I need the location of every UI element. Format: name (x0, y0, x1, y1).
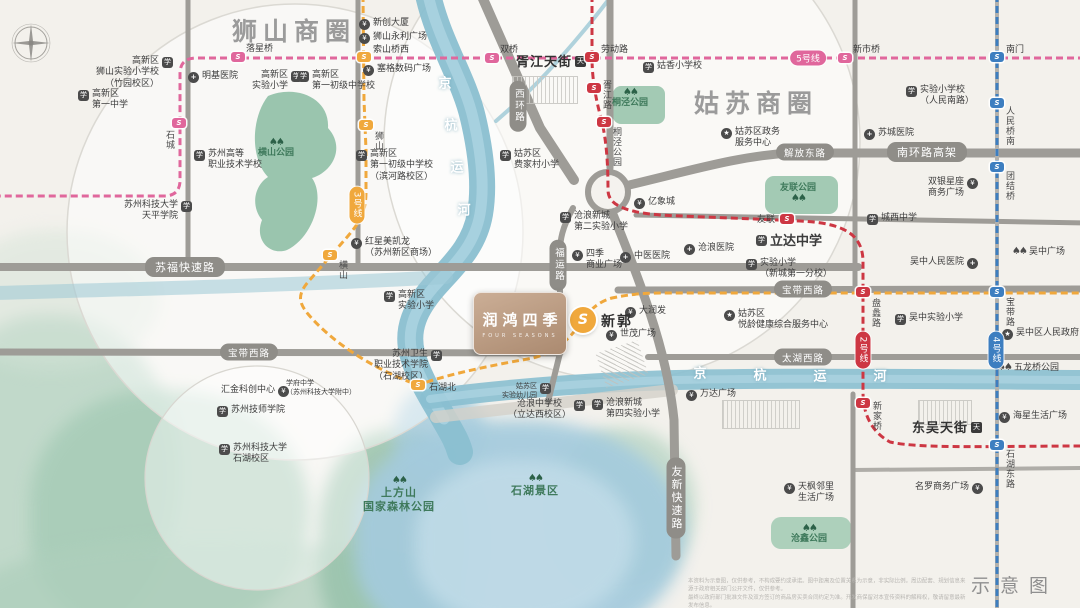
poi-label: 苏州卫生 职业技术学院 （石湖校区）学 (374, 349, 442, 383)
poi-text: 名罗商务广场 (915, 482, 969, 493)
plaza-icon: ¥ (967, 178, 978, 189)
trees-icon: ♠♠ (392, 476, 406, 486)
poi-text: 苏城医院 (878, 128, 914, 139)
school-icon: 学 (895, 314, 906, 325)
poi-label: ♠♠石湖景区 (511, 474, 559, 498)
hospital-icon: + (684, 244, 695, 255)
poi-label: ¥万达广场 (686, 389, 736, 401)
school-icon: 学 (500, 150, 511, 161)
poi-label: ★姑苏区 悦龄健康综合服务中心 (724, 309, 828, 332)
compass-icon (8, 20, 54, 66)
poi-label: 学苏州科技大学 石湖校区 (219, 443, 287, 466)
poi-label: 名罗商务广场¥ (915, 482, 983, 494)
river-label: 杭 (444, 115, 457, 134)
plaza-icon: ¥ (972, 483, 983, 494)
poi-label: 学府中学 （苏州科技大学附中） (286, 379, 356, 397)
legend-label: 示意图 (971, 571, 1058, 598)
poi-text: 吴中人民医院 (910, 257, 964, 268)
poi-text: 新创大厦 (373, 18, 409, 29)
poi-label: 学立达中学 (756, 234, 822, 250)
poi-text: 实验小学 （新城第一分校） (760, 258, 832, 281)
poi-label: 学高新区 第一初级中学校 （滨河路校区） (356, 149, 433, 183)
poi-text: 立达中学 (770, 234, 822, 250)
metro-line-badge: 3号线 (350, 187, 365, 224)
poi-text: 姑苏区政务 服务中心 (735, 127, 780, 150)
road-label: 南环路高架 (887, 142, 967, 162)
tianjie-icon: 天 (971, 422, 982, 433)
poi-text: 沧浪新城 第四实验小学 (606, 398, 660, 421)
poi-text: 海星生活广场 (1013, 411, 1067, 422)
poi-text: 亿象城 (648, 197, 675, 208)
school-icon: 学 (540, 383, 551, 394)
poi-text: 沧浪中学校 （立达西校区） (508, 399, 571, 422)
poi-text: 汇金科创中心 (221, 385, 275, 396)
poi-label: 学苏州高等 职业技术学校 (194, 149, 262, 172)
road-label: 友新快速路 (667, 458, 686, 539)
metro-station: S (780, 214, 794, 224)
river-label: 京 (438, 73, 451, 92)
school-icon: 学 (560, 212, 571, 223)
poi-text: 高新区 第一中学 (92, 89, 128, 112)
school-icon: 学 (298, 71, 309, 82)
poi-text: 横山公园 (258, 148, 294, 159)
project-marker: 润鸿四季 FOUR SEASONS (473, 292, 567, 355)
station-label: 新郭 (601, 311, 633, 331)
metro-station: S (597, 117, 611, 127)
poi-text: 红星美凯龙 （苏州新区商场） (365, 237, 437, 260)
school-icon: 学 (574, 400, 585, 411)
metro-line-badge: 5号线 (790, 51, 826, 66)
poi-text: 吴中实验小学 (909, 313, 963, 324)
poi-label: 学高新区 实验小学 (384, 290, 434, 313)
trees-icon: ♠♠ (528, 474, 542, 484)
school-icon: 学 (746, 259, 757, 270)
business-circle-shishan: 狮山商圈 (232, 12, 356, 48)
river-label: 运 (450, 157, 463, 176)
plaza-icon: ¥ (606, 330, 617, 341)
metro-station: S (990, 98, 1004, 108)
station-label: 索山桥西 (373, 42, 409, 55)
poi-label: 学吴中实验小学 (895, 313, 963, 325)
gov-icon: ★ (721, 128, 732, 139)
poi-label: ♠♠沧鑫公园 (791, 524, 827, 545)
station-label: 桐泾公园 (610, 127, 623, 167)
station-label: 盘蠡路 (869, 298, 882, 328)
poi-text: 明基医院 (202, 71, 238, 82)
poi-label: +中医医院 (620, 251, 670, 263)
metro-station: S (485, 53, 499, 63)
poi-text: 苏州科技大学 石湖校区 (233, 443, 287, 466)
metro-station: S (990, 287, 1004, 297)
poi-text: 高新区 狮山实验小学校 （竹园校区） (96, 56, 159, 90)
poi-label: ♠♠桐泾公园 (612, 88, 648, 109)
poi-label: ♠♠吴中广场 (1012, 247, 1065, 258)
school-icon: 学 (431, 350, 442, 361)
metro-station: S (990, 162, 1004, 172)
trees-icon: ♠♠ (623, 88, 637, 98)
road-label: 太湖西路 (774, 349, 832, 366)
poi-text: 吴中广场 (1029, 247, 1065, 258)
poi-label: +明基医院 (188, 71, 238, 83)
station-label: 横山 (336, 260, 349, 280)
river-label: 河 (873, 366, 886, 385)
location-map: 狮山商圈 姑苏商圈 示意图 润鸿四季 FOUR SEASONS 本资料为示意图，… (0, 0, 1080, 608)
school-icon: 学 (181, 201, 192, 212)
school-icon: 学 (906, 86, 917, 97)
poi-text: 沧鑫公园 (791, 534, 827, 545)
hospital-icon: + (620, 252, 631, 263)
poi-text: 苏州技师学院 (231, 405, 285, 416)
gov-icon: ★ (724, 310, 735, 321)
poi-text: 塞格数码广场 (377, 64, 431, 75)
poi-label: 学姑香小学校 (643, 61, 702, 73)
poi-text: 高新区 第一初级中学校 （滨河路校区） (370, 149, 433, 183)
river-label: 河 (457, 200, 470, 219)
poi-label: 学高新区 第一中学 (78, 89, 128, 112)
poi-label: 学苏州技师学院 (217, 405, 285, 417)
plaza-icon: ¥ (359, 33, 370, 44)
poi-label: 双银星座 商务广场¥ (928, 177, 978, 200)
plaza-icon: ¥ (572, 250, 583, 261)
poi-label: 苏州科技大学 天平学院学 (124, 200, 192, 223)
school-icon: 学 (643, 62, 654, 73)
station-label: 人民桥南 (1003, 106, 1016, 146)
disclaimer-line2: 最终以政府部门批准文件及双方签订的商品房买卖合同约定为准。开发商保留对本宣传资料… (688, 593, 967, 608)
poi-text: 姑香小学校 (657, 61, 702, 72)
metro-station: S (231, 52, 245, 62)
metro-station: S (172, 118, 186, 128)
poi-label: ¥红星美凯龙 （苏州新区商场） (351, 237, 437, 260)
poi-label: 学沧浪新城 第四实验小学 (592, 398, 660, 421)
road-label: 福运路 (550, 240, 567, 291)
trees-icon: ♠♠ (791, 194, 805, 204)
river-label: 杭 (753, 365, 766, 384)
station-label: 劳动路 (601, 42, 628, 55)
station-label: 石城 (163, 130, 176, 150)
plaza-icon: ¥ (351, 238, 362, 249)
poi-label: 友联公园♠♠ (780, 183, 816, 204)
road-label: 解放东路 (776, 144, 834, 161)
poi-text: 姑苏区 费家村小学 (514, 149, 559, 172)
poi-label: ¥塞格数码广场 (363, 64, 431, 76)
station-label: 友联 (757, 212, 775, 225)
poi-label: 吴中人民医院+ (910, 257, 978, 269)
poi-text: 胥江天街 (516, 55, 572, 71)
metro-station: S (585, 52, 599, 62)
poi-text: 吴中区人民政府 (1016, 328, 1079, 339)
school-icon: 学 (194, 150, 205, 161)
station-label: 双桥 (500, 42, 518, 55)
school-icon: 学 (356, 150, 367, 161)
poi-label: 姑苏区 实验幼儿园学 (502, 382, 551, 400)
poi-text: 上方山 国家森林公园 (363, 486, 435, 514)
poi-label: ¥新创大厦 (359, 18, 409, 30)
metro-line-badge: 2号线 (856, 332, 871, 369)
station-label: 南门 (1006, 42, 1024, 55)
poi-text: 沧浪医院 (698, 243, 734, 254)
metro-station: S (990, 440, 1004, 450)
road-label: 宝带西路 (774, 281, 832, 298)
station-label: 新市桥 (853, 42, 880, 55)
poi-label: ¥天枫邻里 生活广场 (784, 482, 834, 505)
station-label: 新家桥 (870, 401, 883, 431)
poi-label: +沧浪医院 (684, 243, 734, 255)
river-label: 京 (693, 363, 706, 382)
poi-label: ★姑苏区政务 服务中心 (721, 127, 780, 150)
poi-text: 学府中学 （苏州科技大学附中） (286, 379, 356, 397)
poi-text: 高新区 实验小学 (398, 290, 434, 313)
poi-text: 大润发 (639, 306, 666, 317)
poi-text: 苏州卫生 职业技术学院 （石湖校区） (374, 349, 428, 383)
poi-text: 石湖景区 (511, 484, 559, 498)
plaza-icon: ¥ (359, 19, 370, 30)
school-icon: 学 (756, 235, 767, 246)
poi-text: 天枫邻里 生活广场 (798, 482, 834, 505)
station-label: 胥江路 (600, 80, 613, 110)
plaza-icon: ¥ (634, 198, 645, 209)
poi-label: 学城西中学 (867, 213, 917, 225)
metro-station: S (990, 52, 1004, 62)
metro-station: S (411, 380, 425, 390)
hospital-icon: + (864, 129, 875, 140)
school-icon: 学 (384, 291, 395, 302)
metro-station: S (856, 398, 870, 408)
disclaimer: 本资料为示意图，仅供参考，不构成要约或承诺。图中距离及位置关系为示意，非实际比例… (688, 577, 967, 608)
plaza-icon: ¥ (999, 412, 1010, 423)
poi-label: 学沧浪新城 第二实验小学 (560, 211, 628, 234)
poi-label: 汇金科创中心¥ (221, 385, 289, 397)
road-label: 苏福快速路 (145, 257, 225, 277)
poi-text: 五龙桥公园 (1014, 363, 1059, 374)
school-icon: 学 (219, 444, 230, 455)
plaza-icon: ¥ (686, 390, 697, 401)
station-label: 石湖北 (429, 380, 456, 393)
poi-label: ¥海星生活广场 (999, 411, 1067, 423)
poi-label: 沧浪中学校 （立达西校区）学 (508, 399, 585, 422)
poi-text: 东吴天街 (912, 421, 968, 437)
poi-label: 高新区 狮山实验小学校 （竹园校区）学 (96, 56, 173, 90)
road-label: 西环路 (510, 81, 527, 132)
poi-label: 学实验小学 （新城第一分校） (746, 258, 832, 281)
poi-label: ¥四季 商业广场 (572, 249, 622, 272)
poi-label: +苏城医院 (864, 128, 914, 140)
poi-label: ¥亿象城 (634, 197, 675, 209)
metro-station: S (359, 120, 373, 130)
poi-label: ♠♠上方山 国家森林公园 (363, 476, 435, 514)
school-icon: 学 (162, 57, 173, 68)
poi-text: 城西中学 (881, 213, 917, 224)
school-icon: 学 (217, 406, 228, 417)
poi-label: ★吴中区人民政府 (1002, 328, 1079, 340)
metro-station: S (323, 250, 337, 260)
hospital-icon: + (967, 258, 978, 269)
plaza-icon: ¥ (784, 483, 795, 494)
station-label: 狮山 (372, 131, 385, 151)
poi-label: 胥江天街天 (516, 55, 586, 71)
station-label: 宝带路 (1003, 297, 1016, 327)
poi-text: 沧浪新城 第二实验小学 (574, 211, 628, 234)
metro-line-badge: 4号线 (989, 332, 1004, 369)
metro-station: S (838, 53, 852, 63)
poi-label: 东吴天街天 (912, 421, 982, 437)
school-icon: 学 (78, 90, 89, 101)
school-icon: 学 (867, 214, 878, 225)
metro-station: S (570, 307, 596, 333)
poi-text: 桐泾公园 (612, 98, 648, 109)
trees-icon: ♠♠ (269, 138, 283, 148)
poi-text: 万达广场 (700, 389, 736, 400)
poi-text: 中医医院 (634, 251, 670, 262)
project-subtitle: FOUR SEASONS (482, 333, 557, 339)
station-label: 石湖东路 (1003, 449, 1016, 489)
school-icon: 学 (592, 399, 603, 410)
metro-station: S (357, 52, 371, 62)
poi-label: 学姑苏区 费家村小学 (500, 149, 559, 172)
poi-label: 学实验小学校 （人民南路） (906, 85, 974, 108)
poi-text: 苏州科技大学 天平学院 (124, 200, 178, 223)
poi-text: 姑苏区 悦龄健康综合服务中心 (738, 309, 828, 332)
poi-text: 四季 商业广场 (586, 249, 622, 272)
poi-text: 姑苏区 实验幼儿园 (502, 382, 537, 400)
station-label: 团结桥 (1003, 171, 1016, 201)
poi-text: 实验小学校 （人民南路） (920, 85, 974, 108)
metro-station: S (856, 287, 870, 297)
gov-icon: ★ (1002, 329, 1013, 340)
river-label: 运 (813, 366, 826, 385)
wanda-building-sketch (722, 400, 800, 429)
metro-station: S (587, 83, 601, 93)
poi-label: ♠♠五龙桥公园 (997, 363, 1059, 374)
treesdark-icon: ♠♠ (1012, 247, 1026, 257)
business-circle-gusu: 姑苏商圈 (694, 84, 818, 120)
disclaimer-line1: 本资料为示意图，仅供参考，不构成要约或承诺。图中距离及位置关系为示意，非实际比例… (688, 577, 967, 593)
poi-text: 高新区 实验小学 (252, 70, 288, 93)
trees-icon: ♠♠ (802, 524, 816, 534)
poi-label: ♠♠横山公园 (258, 138, 294, 159)
poi-text: 苏州高等 职业技术学校 (208, 149, 262, 172)
plaza-icon: ¥ (363, 65, 374, 76)
poi-label: 高新区 实验小学学 (252, 70, 302, 93)
project-name: 润鸿四季 (482, 309, 562, 330)
hospital-icon: + (188, 72, 199, 83)
poi-text: 双银星座 商务广场 (928, 177, 964, 200)
road-label: 宝带西路 (220, 344, 278, 361)
